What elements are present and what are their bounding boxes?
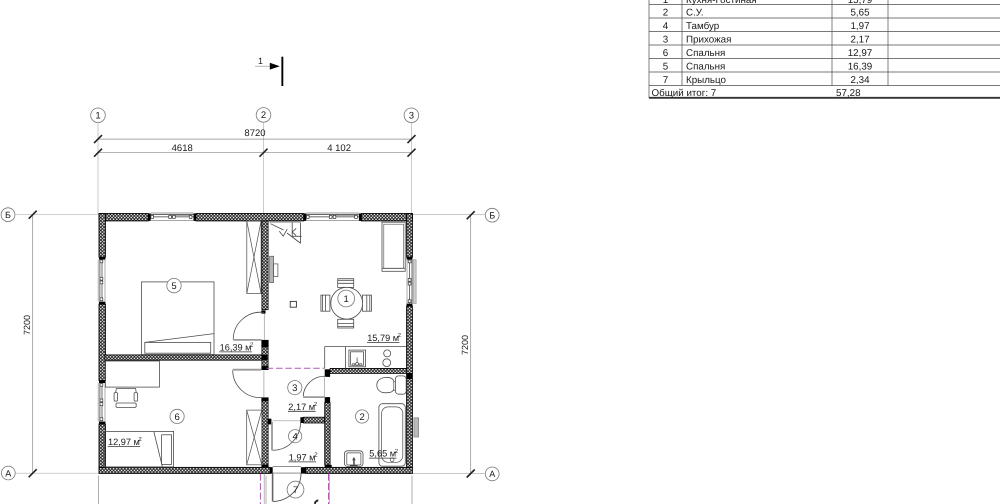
svg-text:А: А xyxy=(5,468,11,478)
svg-text:3: 3 xyxy=(663,34,669,45)
svg-text:4: 4 xyxy=(663,21,669,32)
svg-text:5,65: 5,65 xyxy=(850,7,870,18)
svg-text:3: 3 xyxy=(292,383,297,394)
svg-text:6: 6 xyxy=(663,48,669,59)
svg-text:5: 5 xyxy=(171,281,176,292)
svg-text:Спальня: Спальня xyxy=(686,61,725,72)
svg-text:2,17: 2,17 xyxy=(850,34,869,45)
svg-text:3: 3 xyxy=(409,111,414,122)
svg-text:Спальня: Спальня xyxy=(686,48,725,59)
svg-text:Крыльцо: Крыльцо xyxy=(686,75,727,86)
svg-text:15,79: 15,79 xyxy=(848,0,873,6)
svg-text:12,97 м: 12,97 м xyxy=(108,437,140,447)
svg-text:4618: 4618 xyxy=(172,143,193,154)
svg-text:2,34: 2,34 xyxy=(850,75,870,86)
svg-text:57,28: 57,28 xyxy=(836,88,861,99)
svg-text:7: 7 xyxy=(293,485,298,496)
svg-text:16,39 м: 16,39 м xyxy=(220,342,252,352)
svg-text:Тамбур: Тамбур xyxy=(686,21,720,32)
svg-text:1,97 м: 1,97 м xyxy=(289,452,316,462)
svg-text:2: 2 xyxy=(359,412,364,423)
svg-text:4 102: 4 102 xyxy=(327,143,351,154)
svg-text:5: 5 xyxy=(663,61,669,72)
svg-text:7200: 7200 xyxy=(22,315,32,335)
svg-text:2: 2 xyxy=(261,110,266,121)
svg-text:1: 1 xyxy=(95,111,100,122)
svg-text:4: 4 xyxy=(292,432,297,443)
svg-text:1: 1 xyxy=(344,294,349,305)
svg-text:16,39: 16,39 xyxy=(848,61,873,72)
svg-text:1,97: 1,97 xyxy=(850,21,869,32)
svg-text:Общий итог: 7: Общий итог: 7 xyxy=(652,88,717,99)
svg-text:6: 6 xyxy=(174,412,179,423)
svg-text:12,97: 12,97 xyxy=(848,48,873,59)
svg-text:Б: Б xyxy=(489,211,495,221)
svg-text:Кухня-Гостиная: Кухня-Гостиная xyxy=(686,0,757,6)
svg-text:Б: Б xyxy=(5,210,11,220)
svg-text:8720: 8720 xyxy=(244,128,265,139)
svg-text:1: 1 xyxy=(258,56,263,66)
svg-text:2: 2 xyxy=(663,7,668,18)
svg-text:А: А xyxy=(489,469,495,479)
svg-text:2,17 м: 2,17 м xyxy=(288,402,315,412)
svg-text:Прихожая: Прихожая xyxy=(686,34,731,45)
svg-text:5,65 м: 5,65 м xyxy=(369,449,396,459)
svg-text:7200: 7200 xyxy=(460,335,470,355)
svg-text:1: 1 xyxy=(663,0,668,6)
svg-text:15,79 м: 15,79 м xyxy=(367,333,399,343)
svg-text:7: 7 xyxy=(663,75,668,86)
svg-text:С.У.: С.У. xyxy=(686,7,703,18)
